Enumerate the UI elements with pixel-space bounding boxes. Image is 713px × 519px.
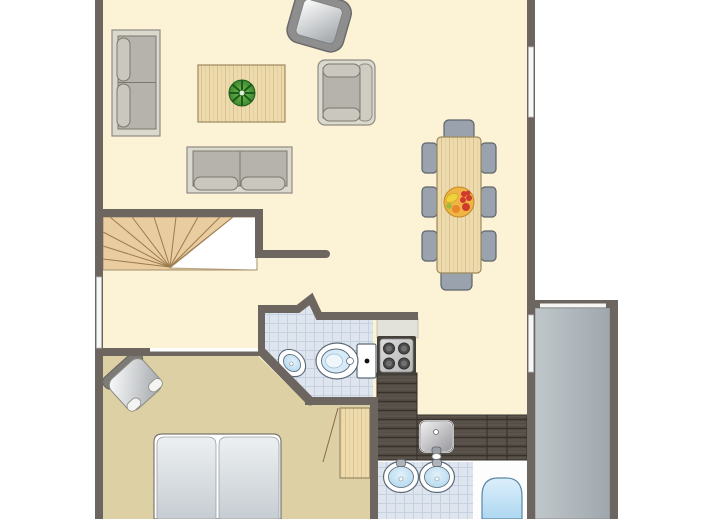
plant: [229, 80, 255, 106]
window-right-top: [529, 47, 534, 117]
floor-plan: [0, 0, 713, 519]
mattress-right: [219, 437, 279, 519]
counter-top-light: [377, 318, 418, 338]
sofa-two-seat-left: [112, 30, 160, 136]
wall-storage-right: [610, 300, 618, 519]
mattress-left: [157, 437, 216, 519]
sofa-back-cushion: [117, 38, 130, 81]
dining-chair-left-3: [422, 231, 437, 261]
coffee-table: [198, 65, 285, 122]
double-bed: [154, 434, 281, 519]
faucet: [433, 460, 442, 467]
dining-chair-right-3: [481, 231, 496, 261]
bedroom-door-opening: [150, 348, 258, 352]
dining-chair-right-1: [481, 143, 496, 173]
window-storage: [529, 315, 534, 372]
faucet: [397, 460, 406, 467]
bathtub: [482, 478, 522, 519]
armchair-living: [318, 60, 375, 125]
wall-stairs-top: [95, 209, 263, 217]
wall-bathroom-left: [370, 397, 378, 519]
kitchen-faucet-spout: [432, 454, 441, 460]
kitchen-faucet: [432, 447, 441, 454]
floor-plan-drawing: [0, 0, 713, 519]
armchair-armrest: [323, 108, 360, 121]
sofa-back-cushion: [117, 84, 130, 127]
toilet-seat-hinge: [347, 358, 354, 365]
window-left: [97, 277, 102, 348]
wall-wc-bottom: [305, 397, 378, 405]
toilet: [316, 343, 376, 379]
dining-chair-left-2: [422, 187, 437, 217]
sofa-two-seat-bottom: [187, 147, 292, 193]
wall-left: [95, 0, 103, 519]
dining-chair-left-1: [422, 143, 437, 173]
fruit-bowl: [444, 187, 474, 217]
sofa-back-cushion: [241, 177, 285, 190]
door-leaf: [340, 408, 370, 478]
storage-room-floor: [535, 308, 610, 519]
wall-hall: [255, 250, 330, 258]
dining-chair-right-2: [481, 187, 496, 217]
armchair-armrest: [323, 64, 360, 77]
stairs: [103, 217, 257, 270]
storage-door-opening: [540, 304, 606, 308]
toilet-flush-button: [365, 359, 370, 364]
counter-vertical: [377, 373, 417, 460]
sofa-back-cushion: [194, 177, 238, 190]
toilet-water: [326, 354, 343, 368]
stove: [377, 336, 416, 375]
kitchen-sink-drain: [434, 430, 439, 435]
